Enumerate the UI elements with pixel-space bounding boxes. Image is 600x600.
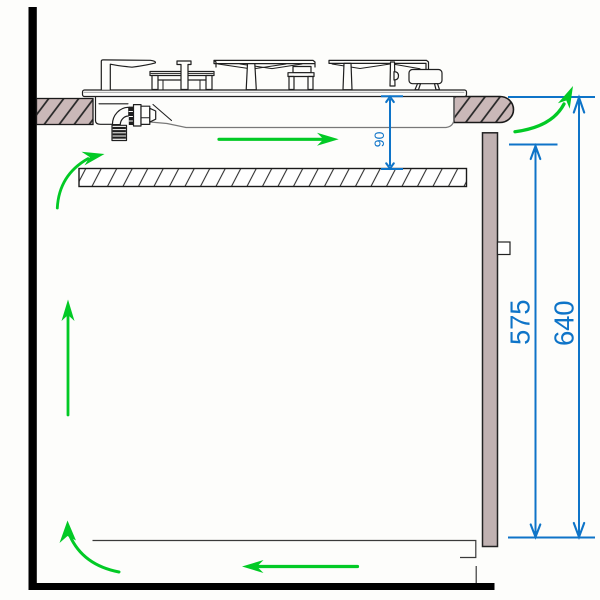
svg-text:575: 575: [505, 300, 536, 345]
svg-text:640: 640: [549, 301, 580, 346]
svg-text:90: 90: [371, 131, 387, 147]
